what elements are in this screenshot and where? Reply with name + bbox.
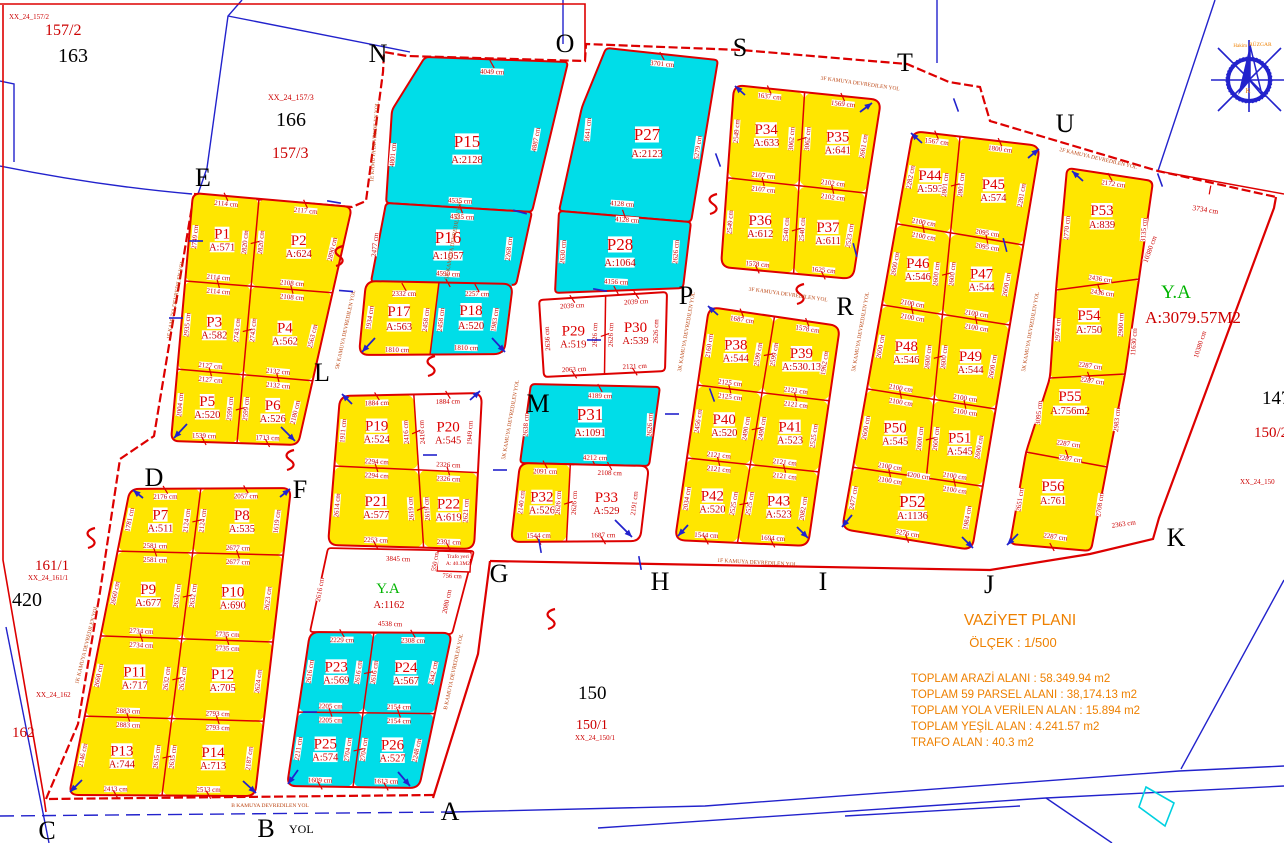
- svg-text:XX_24_150/1: XX_24_150/1: [575, 734, 616, 742]
- svg-text:2416 cm: 2416 cm: [401, 419, 411, 444]
- svg-text:A:567: A:567: [393, 676, 419, 687]
- svg-text:2900 cm: 2900 cm: [1117, 312, 1126, 337]
- svg-text:2734 cm: 2734 cm: [129, 627, 154, 636]
- svg-text:P6: P6: [265, 398, 281, 414]
- svg-text:A:761: A:761: [1040, 496, 1066, 507]
- svg-text:P48: P48: [895, 339, 918, 355]
- svg-text:1544 cm: 1544 cm: [527, 532, 552, 540]
- svg-text:P46: P46: [906, 256, 930, 272]
- svg-text:4156 cm: 4156 cm: [604, 277, 629, 286]
- svg-text:S: S: [733, 33, 747, 62]
- svg-text:166: 166: [276, 109, 306, 131]
- svg-text:2513 cm: 2513 cm: [196, 786, 221, 794]
- svg-text:A:756m2: A:756m2: [1050, 406, 1090, 417]
- svg-text:1884 cm: 1884 cm: [365, 399, 390, 408]
- svg-text:P23: P23: [325, 659, 348, 675]
- svg-text:D: D: [145, 463, 164, 492]
- svg-text:A:593: A:593: [917, 184, 943, 195]
- svg-text:P43: P43: [767, 493, 790, 509]
- svg-text:A:520: A:520: [458, 321, 484, 332]
- svg-text:P44: P44: [918, 168, 942, 184]
- svg-text:4538 cm: 4538 cm: [378, 620, 403, 629]
- svg-text:ÖLÇEK : 1/500: ÖLÇEK : 1/500: [969, 635, 1056, 650]
- svg-text:1694 cm: 1694 cm: [761, 534, 786, 543]
- svg-text:2735 cm: 2735 cm: [215, 644, 240, 653]
- svg-text:Trafo yeri: Trafo yeri: [447, 553, 469, 560]
- svg-text:P22: P22: [437, 497, 460, 513]
- svg-text:2793 cm: 2793 cm: [205, 724, 230, 733]
- svg-text:XX_24_161/1: XX_24_161/1: [28, 574, 69, 582]
- svg-text:B KAMUYA DEVREDILEN YOL: B KAMUYA DEVREDILEN YOL: [231, 803, 309, 809]
- svg-text:P9: P9: [140, 582, 156, 598]
- svg-text:A:2128: A:2128: [451, 155, 483, 166]
- svg-text:XX_24_157/3: XX_24_157/3: [268, 93, 314, 102]
- svg-text:P37: P37: [816, 220, 840, 236]
- svg-text:163: 163: [58, 45, 88, 67]
- svg-text:J: J: [984, 570, 994, 599]
- svg-text:I: I: [819, 567, 828, 596]
- svg-text:G: G: [490, 559, 509, 588]
- svg-text:A:641: A:641: [825, 146, 851, 157]
- svg-text:P24: P24: [394, 660, 418, 676]
- svg-text:P41: P41: [778, 420, 801, 436]
- svg-text:TOPLAM ARAZİ ALANI : 58.349.94: TOPLAM ARAZİ ALANI : 58.349.94 m2: [911, 672, 1110, 685]
- svg-text:P26: P26: [381, 737, 405, 753]
- svg-text:H: H: [651, 567, 670, 596]
- svg-text:161/1: 161/1: [35, 558, 69, 574]
- svg-text:2308 cm: 2308 cm: [401, 637, 426, 645]
- svg-text:A:3079.57M2: A:3079.57M2: [1145, 308, 1241, 327]
- svg-text:4049 cm: 4049 cm: [480, 68, 505, 77]
- svg-text:A:545: A:545: [947, 446, 973, 457]
- svg-text:1810 cm: 1810 cm: [385, 346, 410, 354]
- svg-text:2039 cm: 2039 cm: [624, 297, 649, 307]
- svg-text:F: F: [293, 475, 307, 504]
- svg-text:A:744: A:744: [109, 759, 136, 770]
- svg-text:2326 cm: 2326 cm: [436, 474, 461, 483]
- svg-text:A:524: A:524: [364, 435, 391, 446]
- svg-text:P30: P30: [624, 320, 647, 336]
- svg-text:2154 cm: 2154 cm: [387, 717, 412, 725]
- svg-text:RÜZGAR: RÜZGAR: [1249, 41, 1272, 48]
- svg-text:A:1091: A:1091: [574, 428, 606, 439]
- svg-text:2294 cm: 2294 cm: [364, 457, 389, 466]
- svg-text:E: E: [195, 163, 211, 192]
- svg-text:P35: P35: [826, 130, 849, 146]
- svg-text:A:690: A:690: [220, 600, 246, 611]
- svg-text:P4: P4: [277, 321, 293, 337]
- svg-text:A:1136: A:1136: [897, 511, 928, 522]
- svg-text:A: A: [441, 797, 460, 826]
- svg-text:P1: P1: [214, 227, 230, 243]
- svg-text:A:717: A:717: [122, 680, 148, 691]
- svg-text:P14: P14: [201, 745, 225, 761]
- svg-text:P31: P31: [577, 405, 603, 424]
- svg-text:A:571: A:571: [209, 243, 235, 254]
- svg-text:P19: P19: [365, 419, 388, 435]
- svg-text:P51: P51: [948, 430, 971, 446]
- svg-text:C: C: [38, 816, 55, 843]
- svg-text:P55: P55: [1058, 389, 1081, 405]
- svg-text:2229 cm: 2229 cm: [330, 636, 355, 644]
- svg-text:A:529: A:529: [593, 506, 619, 517]
- svg-text:P38: P38: [724, 337, 747, 353]
- svg-text:A: 40.3M2: A: 40.3M2: [446, 561, 470, 567]
- svg-text:P20: P20: [436, 419, 459, 435]
- svg-text:Hakim: Hakim: [1233, 44, 1247, 49]
- svg-text:157/3: 157/3: [272, 145, 308, 162]
- svg-text:A:527: A:527: [379, 753, 405, 764]
- svg-text:2793 cm: 2793 cm: [205, 710, 230, 719]
- svg-text:P33: P33: [595, 490, 618, 506]
- svg-text:A:511: A:511: [147, 524, 173, 535]
- svg-text:A:569: A:569: [323, 675, 349, 686]
- svg-text:2416 cm: 2416 cm: [417, 419, 427, 444]
- svg-text:XX_24_150: XX_24_150: [1240, 478, 1275, 486]
- svg-text:A:1064: A:1064: [604, 258, 636, 269]
- svg-text:Y.A: Y.A: [376, 581, 400, 597]
- svg-text:P49: P49: [959, 349, 982, 365]
- svg-text:2540 cm: 2540 cm: [782, 217, 792, 242]
- svg-text:B: B: [257, 814, 274, 843]
- svg-text:147: 147: [1262, 388, 1284, 409]
- svg-text:P17: P17: [387, 304, 411, 320]
- svg-text:2619 cm: 2619 cm: [406, 496, 416, 521]
- svg-text:3062 cm: 3062 cm: [787, 126, 797, 151]
- svg-text:1613 cm: 1613 cm: [374, 777, 399, 785]
- svg-text:A:705: A:705: [209, 683, 235, 694]
- svg-text:A:624: A:624: [286, 249, 313, 260]
- svg-text:M: M: [526, 389, 549, 418]
- svg-text:YOL: YOL: [289, 822, 314, 836]
- svg-text:P54: P54: [1077, 308, 1101, 324]
- svg-text:A:546: A:546: [905, 272, 931, 283]
- svg-text:A:520: A:520: [699, 504, 725, 515]
- svg-text:2294 cm: 2294 cm: [364, 471, 389, 480]
- svg-text:2413 cm: 2413 cm: [103, 785, 128, 793]
- svg-text:P42: P42: [701, 488, 724, 504]
- svg-text:1544 cm: 1544 cm: [694, 531, 719, 540]
- svg-text:P5: P5: [199, 394, 215, 410]
- svg-text:O: O: [556, 29, 575, 58]
- svg-text:2677 cm: 2677 cm: [226, 558, 251, 567]
- svg-text:2121 cm: 2121 cm: [622, 362, 647, 371]
- svg-text:2581 cm: 2581 cm: [143, 542, 168, 551]
- svg-text:A:563: A:563: [386, 322, 412, 333]
- svg-text:2677 cm: 2677 cm: [226, 544, 251, 553]
- svg-text:P36: P36: [749, 213, 773, 229]
- svg-text:2057 cm: 2057 cm: [234, 492, 259, 500]
- svg-text:A:633: A:633: [753, 138, 779, 149]
- svg-text:P39: P39: [790, 346, 813, 362]
- svg-text:A:2123: A:2123: [631, 149, 663, 160]
- svg-text:P45: P45: [982, 177, 1005, 193]
- svg-text:VAZİYET PLANI: VAZİYET PLANI: [964, 611, 1076, 629]
- svg-text:2883 cm: 2883 cm: [116, 721, 141, 730]
- svg-text:2734 cm: 2734 cm: [129, 641, 154, 650]
- svg-text:P15: P15: [454, 132, 480, 151]
- svg-text:A:545: A:545: [882, 437, 908, 448]
- svg-text:2205 cm: 2205 cm: [318, 702, 343, 710]
- svg-text:2626 cm: 2626 cm: [652, 319, 661, 344]
- svg-text:P2: P2: [291, 233, 307, 249]
- svg-text:A:577: A:577: [363, 510, 389, 521]
- svg-text:1713 cm: 1713 cm: [255, 434, 280, 443]
- svg-text:2626 cm: 2626 cm: [607, 322, 615, 347]
- svg-text:1884 cm: 1884 cm: [436, 397, 461, 406]
- svg-text:A:545: A:545: [435, 435, 461, 446]
- svg-text:L: L: [314, 358, 330, 387]
- svg-text:A:519: A:519: [560, 340, 586, 351]
- svg-text:A:523: A:523: [777, 436, 803, 447]
- svg-text:2619 cm: 2619 cm: [422, 496, 432, 521]
- svg-text:2626 cm: 2626 cm: [554, 490, 563, 515]
- svg-text:2326 cm: 2326 cm: [436, 460, 461, 469]
- svg-text:TRAFO ALAN : 40.3 m2: TRAFO ALAN : 40.3 m2: [911, 737, 1034, 749]
- svg-text:2108 cm: 2108 cm: [598, 469, 623, 478]
- svg-text:2253 cm: 2253 cm: [364, 536, 389, 545]
- svg-text:T: T: [897, 48, 913, 77]
- svg-text:A:713: A:713: [200, 761, 226, 772]
- svg-text:2581 cm: 2581 cm: [143, 556, 168, 565]
- svg-text:2063 cm: 2063 cm: [562, 365, 587, 374]
- svg-text:150: 150: [578, 683, 607, 704]
- svg-text:A:520: A:520: [711, 428, 737, 439]
- svg-text:A:520: A:520: [194, 410, 220, 421]
- svg-text:A:1162: A:1162: [373, 600, 404, 611]
- svg-text:162: 162: [12, 725, 35, 741]
- svg-text:Y.A: Y.A: [1161, 282, 1191, 303]
- svg-text:A:619: A:619: [435, 513, 461, 524]
- svg-text:P8: P8: [234, 508, 250, 524]
- svg-text:420: 420: [12, 589, 42, 611]
- svg-text:A:612: A:612: [747, 229, 773, 240]
- svg-text:2626 cm: 2626 cm: [645, 412, 654, 437]
- svg-text:2626 cm: 2626 cm: [591, 322, 599, 347]
- svg-text:2883 cm: 2883 cm: [116, 707, 141, 716]
- svg-text:U: U: [1056, 109, 1075, 138]
- svg-text:157/2: 157/2: [45, 22, 81, 39]
- svg-text:2039 cm: 2039 cm: [560, 301, 585, 311]
- svg-text:2974 cm: 2974 cm: [1054, 317, 1063, 342]
- svg-text:K: K: [1167, 523, 1186, 552]
- svg-text:1810 cm: 1810 cm: [454, 344, 479, 352]
- svg-text:A:750: A:750: [1076, 325, 1102, 336]
- svg-text:P25: P25: [314, 737, 337, 753]
- svg-text:P29: P29: [562, 324, 585, 340]
- svg-text:P13: P13: [110, 743, 133, 759]
- svg-text:A:544: A:544: [723, 353, 750, 364]
- svg-text:P18: P18: [459, 303, 482, 319]
- svg-text:A:574: A:574: [980, 193, 1007, 204]
- svg-text:A:530.13: A:530.13: [782, 362, 821, 373]
- svg-text:P7: P7: [152, 508, 168, 524]
- svg-text:A:611: A:611: [815, 236, 841, 247]
- svg-text:P32: P32: [530, 490, 553, 506]
- svg-text:2176 cm: 2176 cm: [153, 493, 178, 501]
- svg-text:P53: P53: [1090, 203, 1113, 219]
- svg-text:XX_24_162: XX_24_162: [36, 691, 71, 699]
- svg-text:N: N: [369, 39, 388, 68]
- svg-text:2636 cm: 2636 cm: [543, 326, 553, 351]
- svg-text:P50: P50: [883, 421, 906, 437]
- svg-text:P21: P21: [365, 494, 388, 510]
- svg-text:2332 cm: 2332 cm: [392, 290, 417, 298]
- svg-text:P34: P34: [755, 122, 779, 138]
- svg-text:2391 cm: 2391 cm: [437, 538, 462, 547]
- svg-text:3845 cm: 3845 cm: [386, 555, 411, 564]
- svg-text:R: R: [836, 292, 854, 321]
- svg-text:P10: P10: [221, 584, 244, 600]
- svg-text:A:562: A:562: [272, 337, 298, 348]
- svg-text:A:539: A:539: [622, 336, 648, 347]
- svg-text:A:526: A:526: [529, 506, 555, 517]
- svg-text:A:535: A:535: [229, 524, 255, 535]
- svg-text:2735 cm: 2735 cm: [215, 630, 240, 639]
- svg-text:2205 cm: 2205 cm: [318, 716, 343, 724]
- svg-text:A:582: A:582: [201, 331, 227, 342]
- svg-text:756 cm: 756 cm: [442, 573, 462, 581]
- svg-text:150/1: 150/1: [576, 718, 608, 733]
- svg-text:1949 cm: 1949 cm: [465, 420, 474, 445]
- svg-text:P27: P27: [634, 125, 661, 144]
- svg-text:P40: P40: [713, 412, 736, 428]
- svg-text:K: K: [1245, 87, 1250, 95]
- svg-text:A:574: A:574: [312, 753, 339, 764]
- svg-text:A:546: A:546: [893, 355, 919, 366]
- svg-text:A:544: A:544: [957, 365, 984, 376]
- svg-text:2621 cm: 2621 cm: [461, 498, 470, 523]
- svg-text:150/2: 150/2: [1254, 425, 1284, 441]
- svg-text:A:677: A:677: [135, 598, 161, 609]
- svg-text:4212 cm: 4212 cm: [583, 454, 608, 462]
- svg-text:TOPLAM YOLA VERİLEN ALAN : 15.: TOPLAM YOLA VERİLEN ALAN : 15.894 m2: [911, 704, 1140, 717]
- svg-text:1609 cm: 1609 cm: [308, 776, 333, 784]
- svg-text:2154 cm: 2154 cm: [387, 703, 412, 711]
- svg-text:P3: P3: [206, 315, 222, 331]
- svg-text:A:523: A:523: [765, 509, 791, 520]
- svg-text:1539 cm: 1539 cm: [192, 432, 217, 441]
- svg-text:P12: P12: [211, 667, 234, 683]
- svg-text:A:839: A:839: [1089, 220, 1115, 231]
- svg-text:P56: P56: [1041, 479, 1065, 495]
- svg-text:A:544: A:544: [968, 283, 995, 294]
- svg-text:TOPLAM 59 PARSEL ALANI : 38,17: TOPLAM 59 PARSEL ALANI : 38,174.13 m2: [911, 689, 1137, 701]
- svg-text:2257 cm: 2257 cm: [465, 290, 490, 298]
- svg-text:XX_24_157/2: XX_24_157/2: [9, 13, 50, 21]
- svg-text:TOPLAM YEŞİL ALAN : 4.241.57: TOPLAM YEŞİL ALAN : 4.241.57 m2: [911, 720, 1099, 733]
- svg-text:P47: P47: [970, 267, 994, 283]
- svg-text:1687 cm: 1687 cm: [591, 531, 616, 539]
- svg-text:P28: P28: [607, 235, 633, 254]
- svg-text:4189 cm: 4189 cm: [588, 392, 613, 400]
- svg-text:2091 cm: 2091 cm: [533, 467, 558, 476]
- svg-text:P52: P52: [899, 492, 925, 511]
- svg-text:A:526: A:526: [260, 414, 286, 425]
- svg-text:P11: P11: [123, 664, 146, 680]
